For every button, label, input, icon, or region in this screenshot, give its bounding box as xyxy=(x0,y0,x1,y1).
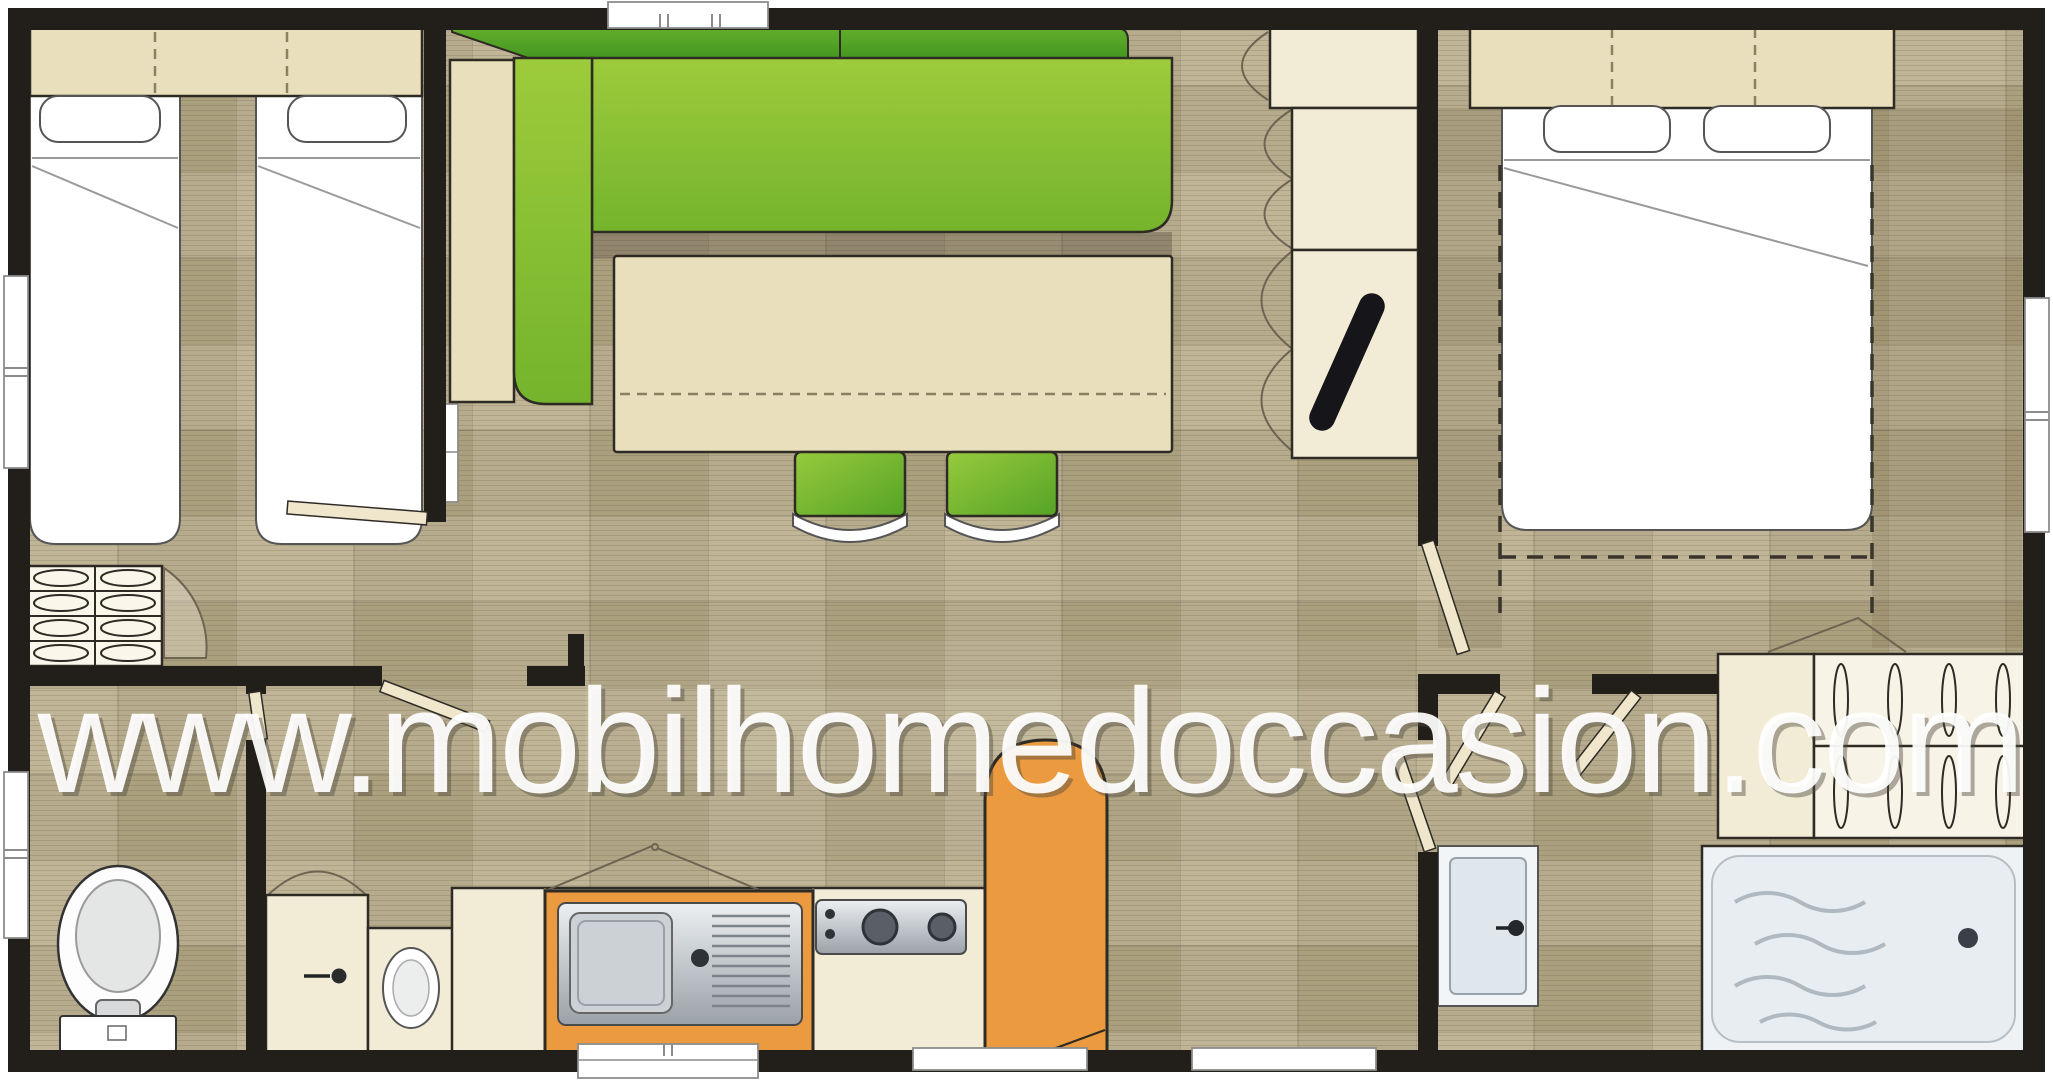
window-left-1 xyxy=(4,276,28,468)
floor-patch xyxy=(1872,108,2022,648)
stove-knob xyxy=(825,929,835,939)
wall-shower-left-b xyxy=(1418,852,1438,1052)
single-bed-right xyxy=(256,94,422,544)
wall-right xyxy=(2023,8,2045,1072)
toilet-seat xyxy=(76,880,160,992)
burner xyxy=(929,914,955,940)
floor-patch xyxy=(1438,108,1502,648)
bedroom-double xyxy=(1470,26,1894,620)
stove-knob xyxy=(825,909,835,919)
window-right xyxy=(2025,298,2049,532)
wardrobe-folded-linen xyxy=(28,566,207,666)
watermark-text: www.mobilhomedoccasion.com xyxy=(37,659,2023,824)
window-left-2 xyxy=(4,772,28,938)
double-bed xyxy=(1502,100,1872,530)
headboard-shelf xyxy=(1470,26,1894,108)
wall-bedroom1 xyxy=(424,8,446,522)
entry-step xyxy=(578,1044,758,1078)
sink-faucet xyxy=(691,949,709,967)
flush-button xyxy=(108,1026,126,1040)
vanity-cabinet xyxy=(266,895,368,1053)
sofa-chaise xyxy=(514,58,592,404)
burner xyxy=(863,910,897,944)
threshold-2 xyxy=(1192,1048,1376,1070)
wall-bedroom2 xyxy=(1418,8,1438,546)
chair-seat xyxy=(947,452,1057,516)
wc-room xyxy=(58,866,178,1052)
window-top xyxy=(608,2,768,28)
sink-basin xyxy=(570,913,672,1013)
dining-table xyxy=(614,256,1172,452)
wall-top xyxy=(8,8,2045,30)
mobile-home-floorplan: www.mobilhomedoccasion.com www.mobilhome… xyxy=(0,0,2053,1080)
storage-cabinet xyxy=(1292,108,1418,250)
floorplan-canvas: www.mobilhomedoccasion.com www.mobilhome… xyxy=(0,0,2053,1080)
pillow xyxy=(1704,106,1830,152)
pillow xyxy=(1544,106,1670,152)
single-bed-left xyxy=(30,94,180,544)
overhead-cabinet xyxy=(1270,26,1418,108)
sofa-seat xyxy=(592,58,1172,232)
headboard-shelf xyxy=(30,28,422,96)
sofa-side-shelf xyxy=(450,60,514,402)
shower-drain xyxy=(1958,928,1978,948)
pillow xyxy=(288,96,406,142)
chair-seat xyxy=(795,452,905,516)
watermark: www.mobilhomedoccasion.com www.mobilhome… xyxy=(37,659,2027,828)
pillow xyxy=(40,96,160,142)
threshold-1 xyxy=(913,1048,1087,1070)
